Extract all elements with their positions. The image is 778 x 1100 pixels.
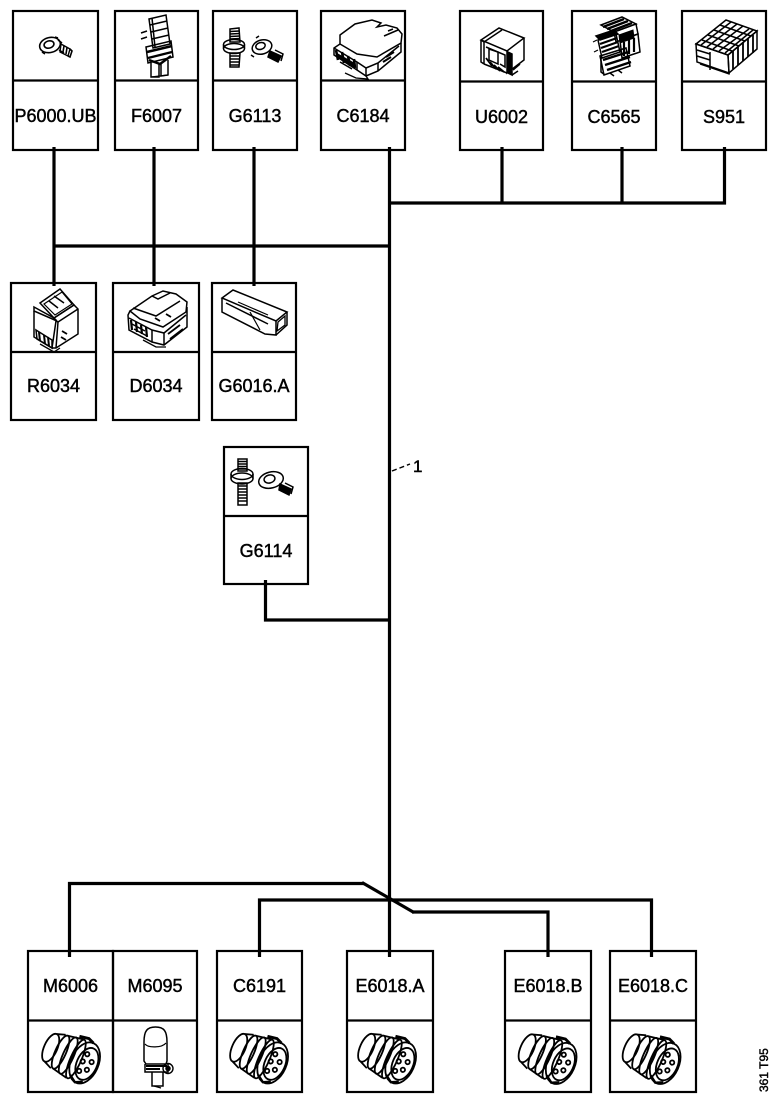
- svg-text:G6113: G6113: [229, 106, 282, 126]
- svg-text:G6016.A: G6016.A: [218, 376, 289, 396]
- svg-text:M6095: M6095: [127, 976, 182, 996]
- svg-text:F6007: F6007: [131, 106, 182, 126]
- svg-text:361 T95: 361 T95: [757, 1048, 771, 1092]
- svg-text:S951: S951: [703, 107, 745, 127]
- svg-text:G6114: G6114: [240, 541, 293, 561]
- svg-text:C6184: C6184: [336, 106, 389, 126]
- svg-text:U6002: U6002: [475, 107, 528, 127]
- svg-text:C6191: C6191: [233, 976, 286, 996]
- svg-text:C6565: C6565: [587, 107, 640, 127]
- svg-text:1: 1: [413, 457, 422, 476]
- svg-text:D6034: D6034: [129, 376, 182, 396]
- svg-text:E6018.C: E6018.C: [618, 976, 688, 996]
- svg-text:P6000.UB: P6000.UB: [14, 106, 96, 126]
- svg-text:M6006: M6006: [43, 976, 98, 996]
- svg-text:E6018.A: E6018.A: [355, 976, 424, 996]
- svg-text:E6018.B: E6018.B: [513, 976, 582, 996]
- svg-text:R6034: R6034: [27, 376, 80, 396]
